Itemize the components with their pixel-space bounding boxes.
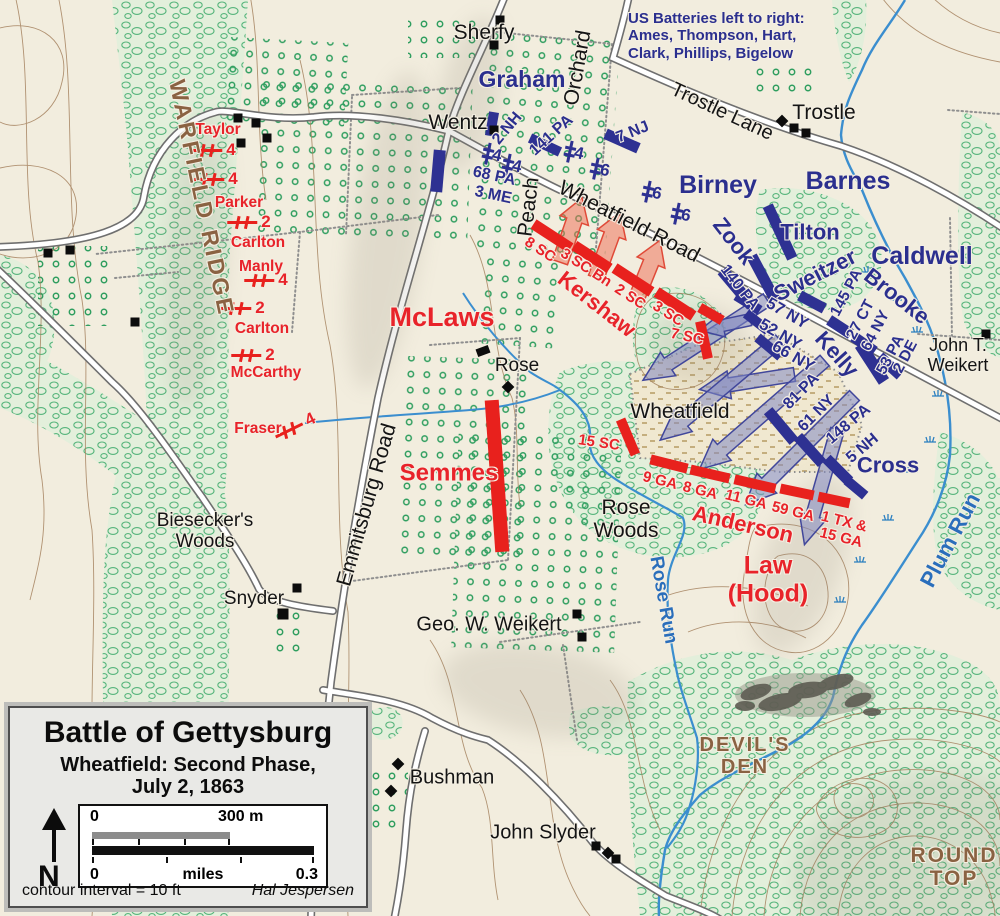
cartographer-credit: Hal Jespersen <box>252 882 354 900</box>
scale-bar: 0 300 m 0 miles 0.3 <box>78 804 328 888</box>
union-label-birney: Birney <box>679 172 757 198</box>
label-line: Biesecker's <box>157 511 254 532</box>
terrain-label-round-top: ROUND TOP <box>911 844 998 890</box>
cs-battery-label-parker: Parker <box>215 195 263 211</box>
union-label-caldwell: Caldwell <box>871 243 972 269</box>
label-line: Law <box>728 553 809 581</box>
union-label-barnes: Barnes <box>806 168 891 194</box>
legend-box: Battle of Gettysburg Wheatfield: Second … <box>8 706 368 908</box>
label-line: DEN <box>700 756 791 778</box>
gun-count: 2 <box>255 298 264 318</box>
cs-battery-label-mccarthy: McCarthy <box>231 365 302 381</box>
label-line: Rose <box>594 496 659 519</box>
confederate-label-mclaws: McLaws <box>389 303 494 331</box>
battle-map: 4 4 4 6 6 6 4 4 2 4 2 2 4 US Batteries l… <box>0 0 1000 916</box>
cs-battery-label-carlton-a: Carlton <box>231 235 285 251</box>
us-batteries-note: US Batteries left to right: Ames, Thomps… <box>628 10 805 62</box>
terrain-label-devils-den: DEVIL'S DEN <box>700 734 791 778</box>
building <box>612 855 621 864</box>
artillery-icon <box>231 354 261 357</box>
scale-meters-end: 300 m <box>218 808 263 826</box>
building <box>578 633 587 642</box>
building <box>237 139 246 148</box>
place-bieseckers-woods: Biesecker's Woods <box>157 511 254 553</box>
building <box>790 124 799 133</box>
building <box>802 129 811 138</box>
scale-tick <box>312 857 314 863</box>
building <box>263 134 272 143</box>
note-line: Ames, Thompson, Hart, <box>628 27 805 44</box>
place-trostle: Trostle <box>792 102 855 124</box>
place-rose-woods: Rose Woods <box>594 496 659 542</box>
place-wheatfield: Wheatfield <box>630 401 729 423</box>
map-subtitle-date: July 2, 1863 <box>10 776 366 799</box>
cs-battery-mccarthy: 2 <box>231 345 274 365</box>
contour-interval-note: contour interval = 10 ft <box>22 882 181 900</box>
label-line: Woods <box>594 519 659 542</box>
map-subtitle: Wheatfield: Second Phase, <box>10 754 366 777</box>
building <box>278 609 289 620</box>
cs-battery-label-carlton-b: Carlton <box>235 321 289 337</box>
gun-count: 2 <box>261 212 270 232</box>
place-john-slyder: John Slyder <box>490 823 596 844</box>
scale-tick <box>166 857 168 863</box>
scale-bar-miles <box>92 846 314 855</box>
gun-count: 4 <box>226 140 235 160</box>
artillery-icon <box>244 279 274 282</box>
confederate-label-semmes: Semmes <box>400 460 499 485</box>
north-arrow-icon <box>52 828 56 862</box>
artillery-icon <box>227 221 257 224</box>
building <box>131 318 140 327</box>
place-bushman: Bushman <box>410 768 495 789</box>
label-line: (Hood) <box>728 580 809 608</box>
label-line: John T. <box>928 336 989 356</box>
north-arrow-icon <box>42 808 66 830</box>
scale-tick <box>184 839 186 845</box>
union-label-tilton: Tilton <box>780 220 839 243</box>
scale-bar-meters <box>92 832 230 839</box>
building <box>44 249 53 258</box>
scale-tick <box>138 839 140 845</box>
place-john-t-weikert: John T. Weikert <box>928 336 989 376</box>
cs-battery-label-manly: Manly <box>239 259 283 275</box>
label-line: Weikert <box>928 356 989 376</box>
building <box>66 246 75 255</box>
building <box>252 119 261 128</box>
note-line: US Batteries left to right: <box>628 10 805 27</box>
scale-tick <box>92 839 94 845</box>
label-line: Woods <box>157 532 254 553</box>
place-sherfy: Sherfy <box>454 22 515 44</box>
cs-battery-carlton-a: 2 <box>227 212 270 232</box>
building <box>293 584 302 593</box>
scale-tick <box>228 839 230 845</box>
cs-battery-label-fraser: Fraser <box>234 421 281 437</box>
place-snyder: Snyder <box>224 589 284 609</box>
union-label-graham: Graham <box>479 67 566 91</box>
scale-meters-start: 0 <box>90 808 99 826</box>
building <box>573 610 582 619</box>
cs-battery-label-taylor: Taylor <box>195 122 240 138</box>
label-line: DEVIL'S <box>700 734 791 756</box>
place-wentz: Wentz <box>428 112 487 134</box>
label-line: ROUND <box>911 844 998 867</box>
confederate-label-law-hood: Law (Hood) <box>728 553 809 608</box>
note-line: Clark, Phillips, Bigelow <box>628 45 805 62</box>
map-title: Battle of Gettysburg <box>10 716 366 750</box>
place-geo-w-weikert: Geo. W. Weikert <box>416 615 561 636</box>
scale-tick <box>92 857 94 863</box>
gun-count: 2 <box>265 345 274 365</box>
gun-count: 4 <box>228 169 237 189</box>
place-rose: Rose <box>495 356 539 376</box>
scale-tick <box>240 857 242 863</box>
label-line: TOP <box>911 867 998 890</box>
